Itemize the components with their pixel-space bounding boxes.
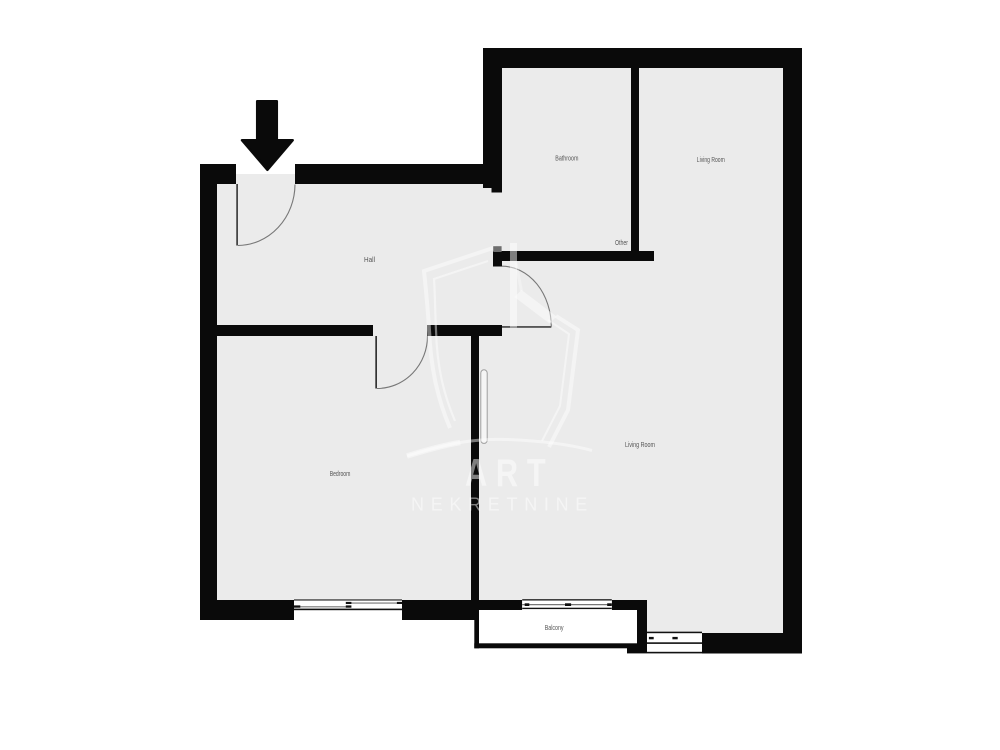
svg-text:Bathroom: Bathroom [555, 154, 578, 163]
svg-text:Bedroom: Bedroom [330, 469, 351, 478]
svg-text:ART: ART [465, 452, 554, 495]
svg-text:Living Room: Living Room [625, 440, 655, 449]
svg-text:NEKRETNINE: NEKRETNINE [411, 495, 594, 515]
svg-text:Other: Other [615, 238, 628, 247]
svg-text:Hall: Hall [364, 255, 375, 264]
svg-text:Balcony: Balcony [545, 623, 564, 632]
svg-text:Living Room: Living Room [697, 155, 725, 164]
